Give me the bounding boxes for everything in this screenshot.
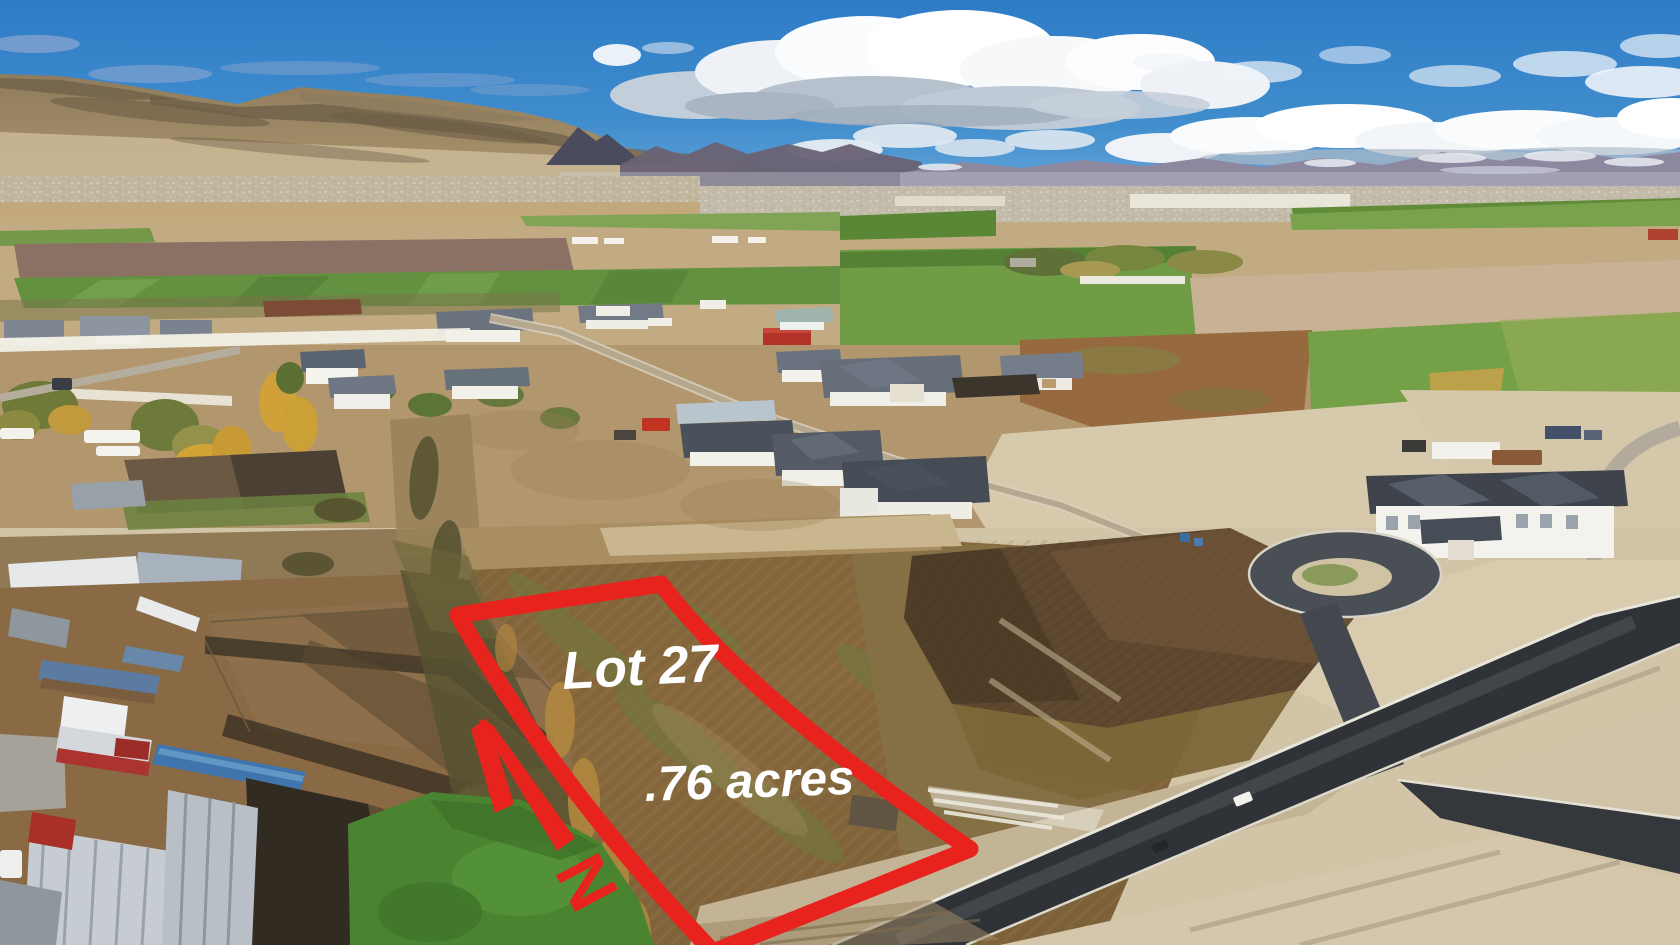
svg-text:Lot 27: Lot 27 <box>561 634 722 701</box>
svg-text:.76 acres: .76 acres <box>643 751 855 812</box>
